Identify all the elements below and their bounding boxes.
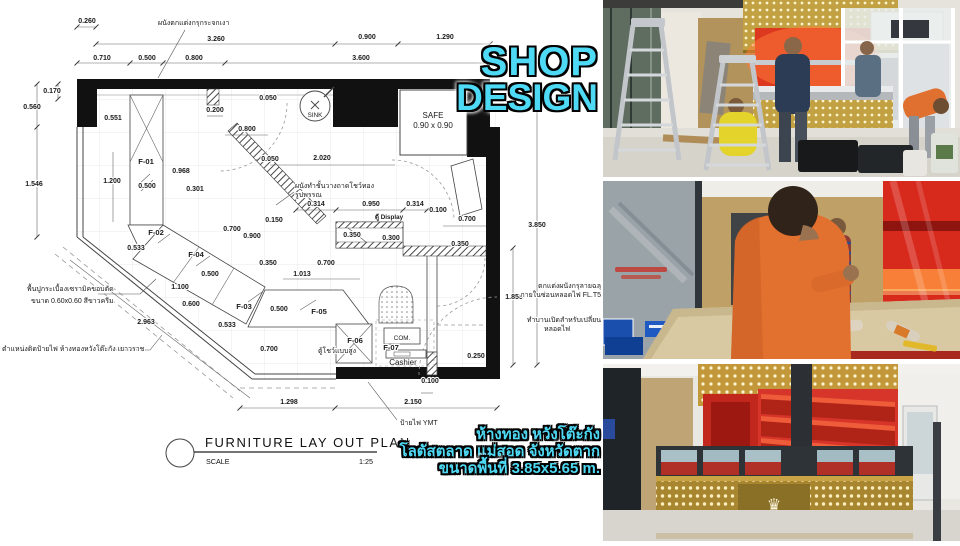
dimension-label: 0.150 [265,217,283,224]
caption-line-2: โลตัสตลาด แม่สอด จังหวัดตาก [290,444,600,461]
annotation-label: รูปพรรณ [295,192,322,199]
dimension-label: 0.100 [421,378,439,385]
dimension-label: 0.900 [358,34,376,41]
dimension-label: 1.200 [103,178,121,185]
dimension-label: 0.350 [343,232,361,239]
corner-hatch [207,89,219,105]
dimension-label: 0.560 [23,104,41,111]
dimension-label: 0.950 [362,201,380,208]
caption-line-1: ห้างทอง หวังโต๊ะกัง [290,427,600,444]
dimension-label: 0.551 [104,115,122,122]
dimension-label: 1.013 [293,271,311,278]
annotation-label: ตู้โชว์แบบสูง [318,346,356,355]
sink-label: SINK [308,112,323,119]
floor-plan-panel: SAFE 0.90 x 0.90 [0,0,603,541]
scale-label: SCALE [206,457,230,466]
dimension-label: 0.314 [307,201,325,208]
caption-line-3: ขนาดพื้นที่ 3.85x5.65 m. [290,461,600,478]
dimension-label: 0.100 [429,207,447,214]
photo-finished-kiosk: ♛ [603,364,960,541]
dimension-label: 0.050 [261,156,279,163]
logo-line-design: DESIGN [330,81,598,115]
dimension-label: 0.200 [206,107,224,114]
dimension-label: 0.170 [43,88,61,95]
annotation-label: หลอดไฟ [544,324,570,333]
dimension-label: 0.500 [201,271,219,278]
dimension-label: 0.710 [93,55,111,62]
dimension-label: 0.533 [218,322,236,329]
cashier-label: Cashier [389,358,417,367]
dimension-label: 3.260 [207,36,225,43]
dimension-label: 0.533 [127,245,145,252]
dimension-label: 0.500 [138,183,156,190]
safe-size-label: 0.90 x 0.90 [413,121,453,130]
dimension-label: 1.100 [171,284,189,291]
dimension-label: 0.301 [186,186,204,193]
annotation-label: ตกแต่งผนังกรุลายฉลุ [538,282,601,290]
furniture-label: F-05 [311,307,327,316]
dimension-label: 2.020 [313,155,331,162]
display-cabinet-label: ตู้ Display [375,212,404,222]
furniture-label: F-02 [148,228,164,237]
annotation-label: ผนังตกแต่งกรุกระจกเงา [158,19,229,27]
com-label: COM. [394,335,411,342]
annotation-label: ป้ายไฟ YMT [400,418,438,427]
furniture-label: F-07 [383,343,399,352]
furniture-label: F-04 [188,250,204,259]
dimension-label: 0.050 [259,95,277,102]
dimension-label: 0.968 [172,168,190,175]
pillar [379,286,413,323]
dimension-label: 2.150 [404,399,422,406]
logo-line-shop: SHOP [330,44,598,81]
dimension-label: 0.350 [451,241,469,248]
dimension-label: 0.800 [238,126,256,133]
dimension-label: 0.350 [259,260,277,267]
dimension-label: 0.300 [382,235,400,242]
dimension-label: 0.260 [78,18,96,25]
photo-construction-overview [603,0,960,177]
annotation-label: ตำแหน่งติดป้ายไฟ ห้างทองหวังโต๊ะกัง เยาว… [2,344,145,353]
annotation-label: ภายในซ่อนหลอดไฟ FL.T5 [520,290,601,299]
dimension-label: 1.298 [280,399,298,406]
dimension-label: 0.900 [243,233,261,240]
dimension-label: 1.290 [436,34,454,41]
furniture-label: F-06 [347,336,363,345]
dimension-label: 0.800 [185,55,203,62]
furniture-label: F-03 [236,302,252,311]
dimension-label: 1.546 [25,181,43,188]
shop-design-logo: SHOP DESIGN [330,44,598,115]
dimension-label: 0.600 [182,301,200,308]
dimension-label: 0.250 [467,353,485,360]
dimension-label: 0.700 [317,260,335,267]
dimension-label: 0.314 [406,201,424,208]
dimension-label: 3.850 [528,222,546,229]
dimension-label: 0.500 [270,306,288,313]
annotation-label: ทำบานเปิดสำหรับเปลี่ยน [527,315,601,324]
dimension-label: 0.700 [223,226,241,233]
dimension-label: 0.700 [458,216,476,223]
photo-counter-detail [603,181,960,359]
annotation-label: ขนาด 0.60x0.60 สีขาวครีม [31,297,114,305]
project-caption: ห้างทอง หวังโต๊ะกัง โลตัสตลาด แม่สอด จัง… [290,427,600,478]
furniture-label: F-01 [138,157,154,166]
dimension-label: 2.963 [137,319,155,326]
dimension-label: 0.500 [138,55,156,62]
screenshot-root: SAFE 0.90 x 0.90 [0,0,960,541]
dimension-label: 0.700 [260,346,278,353]
